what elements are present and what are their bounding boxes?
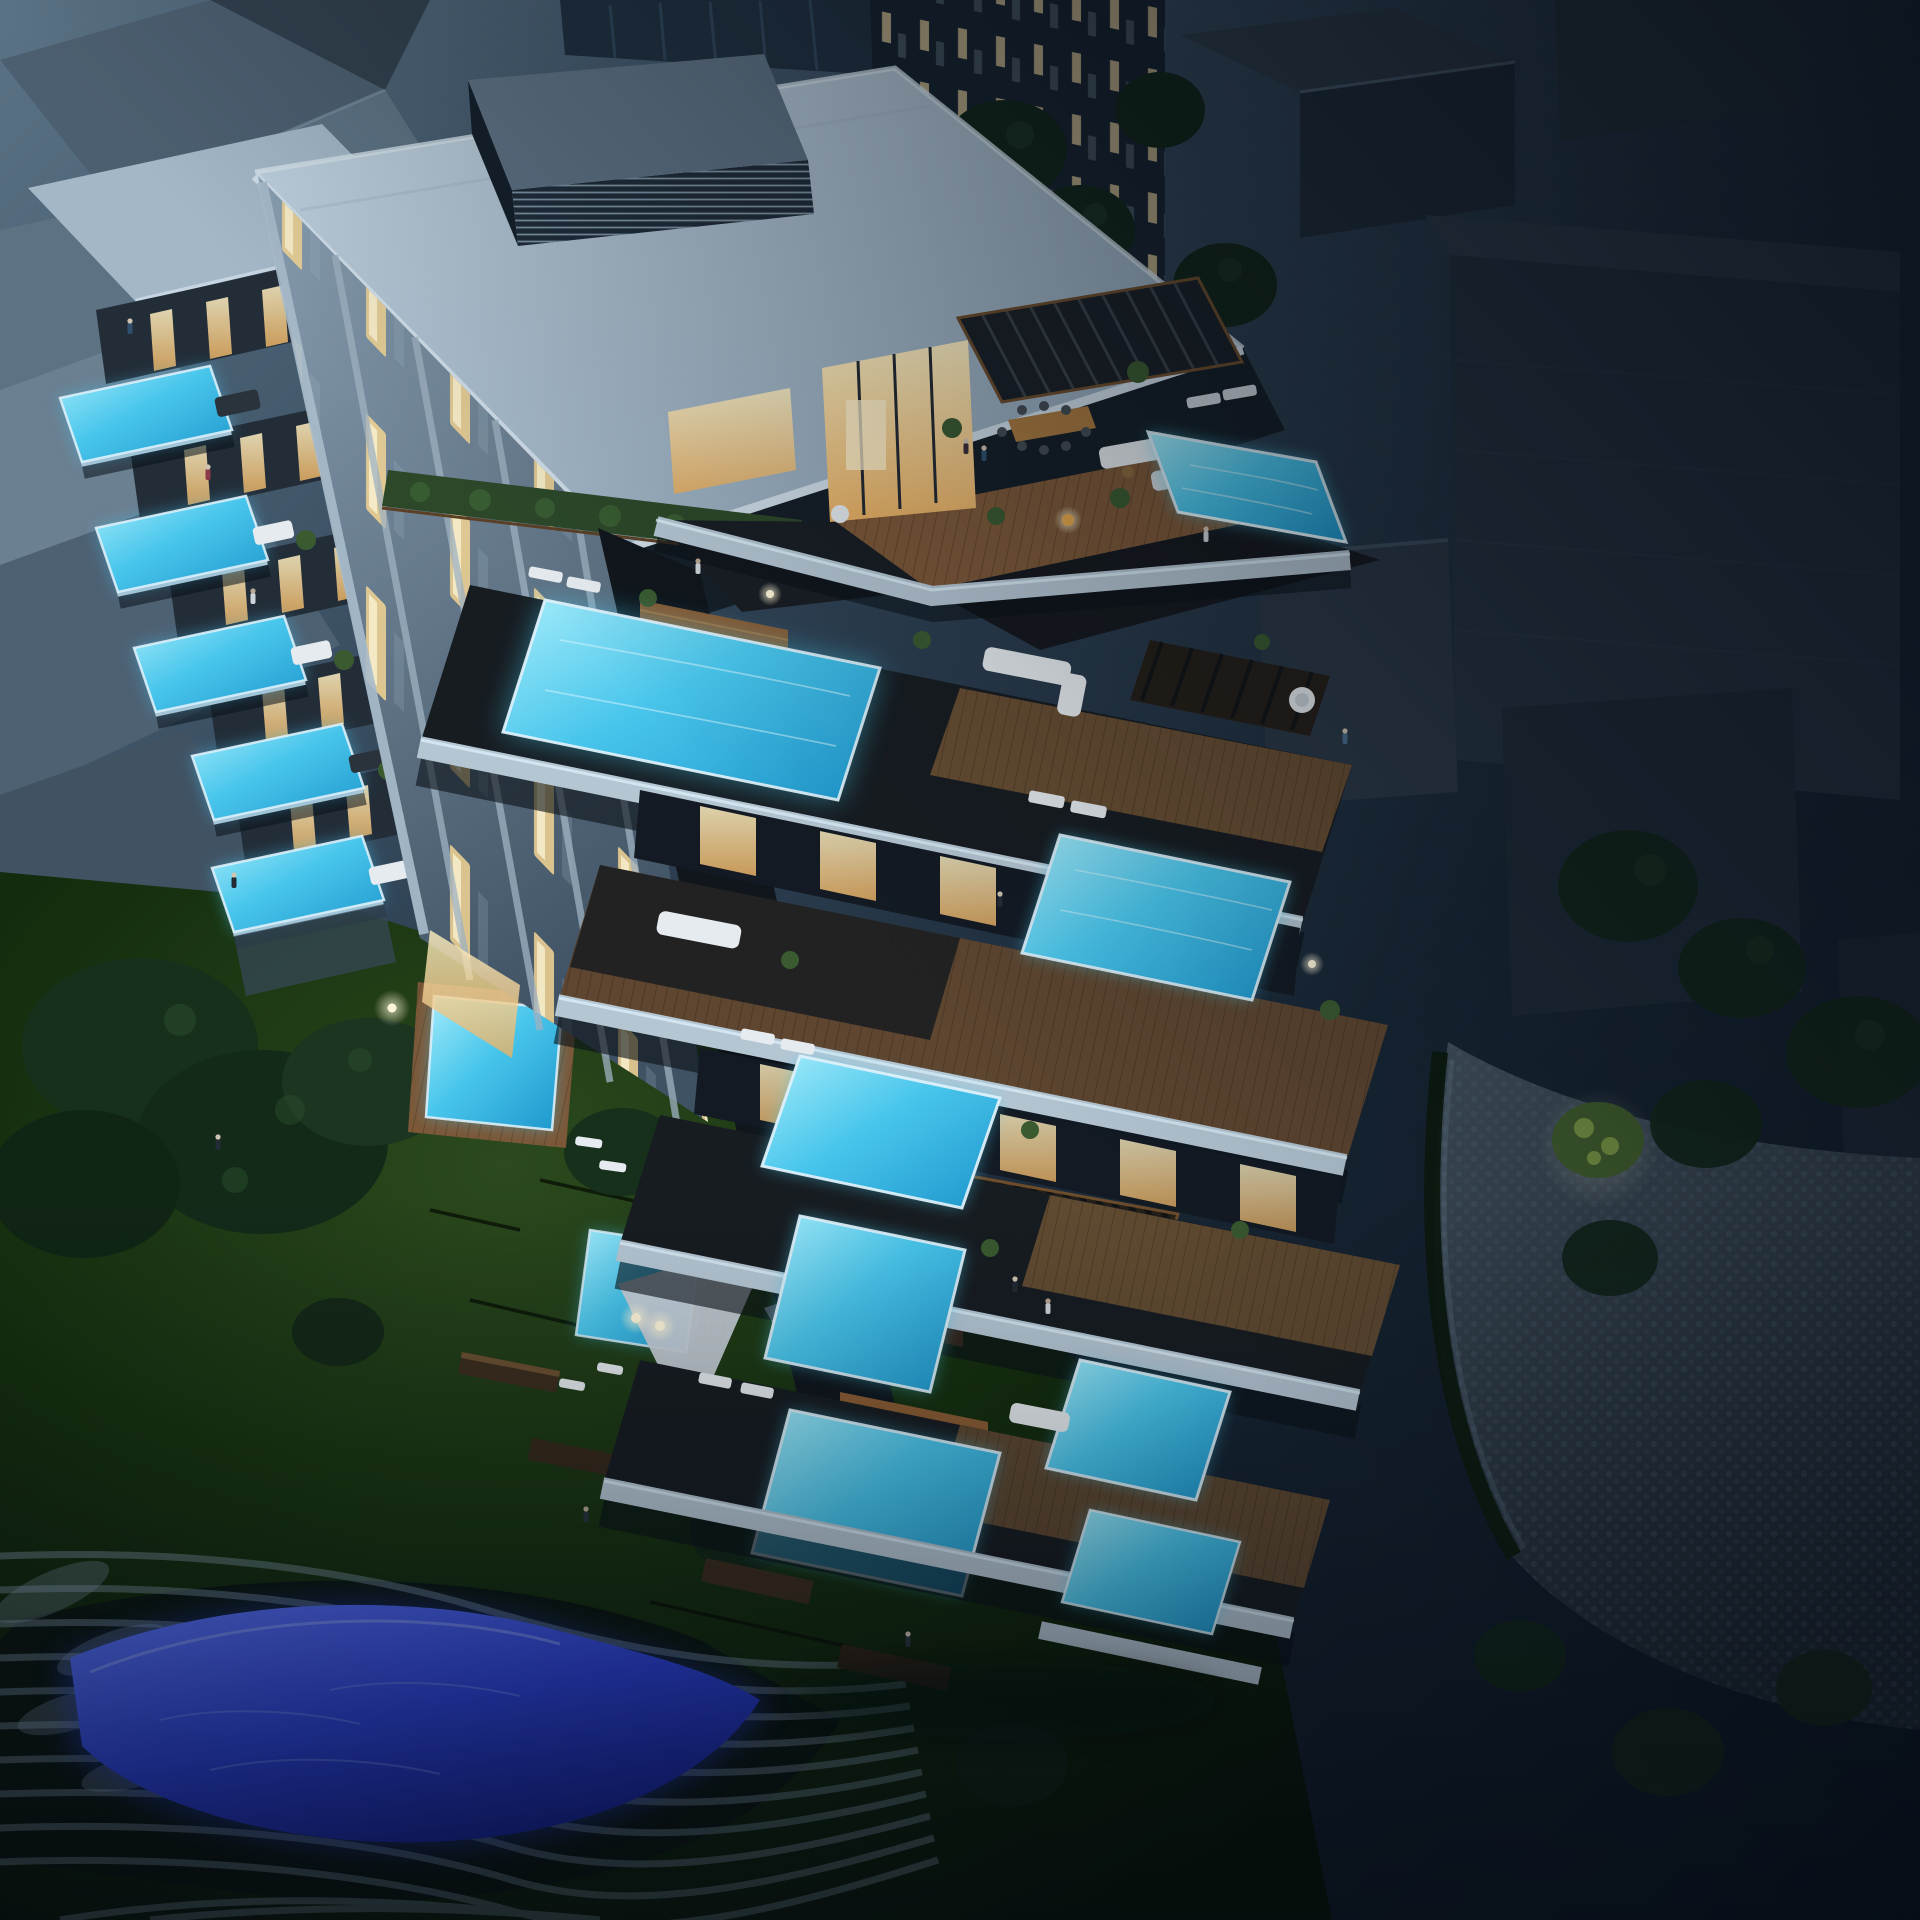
- rendering-canvas: Aerial night-time architectural renderin…: [0, 0, 1920, 1920]
- night-aerial-render: [0, 0, 1920, 1920]
- vignette-bottom: [0, 0, 1920, 1920]
